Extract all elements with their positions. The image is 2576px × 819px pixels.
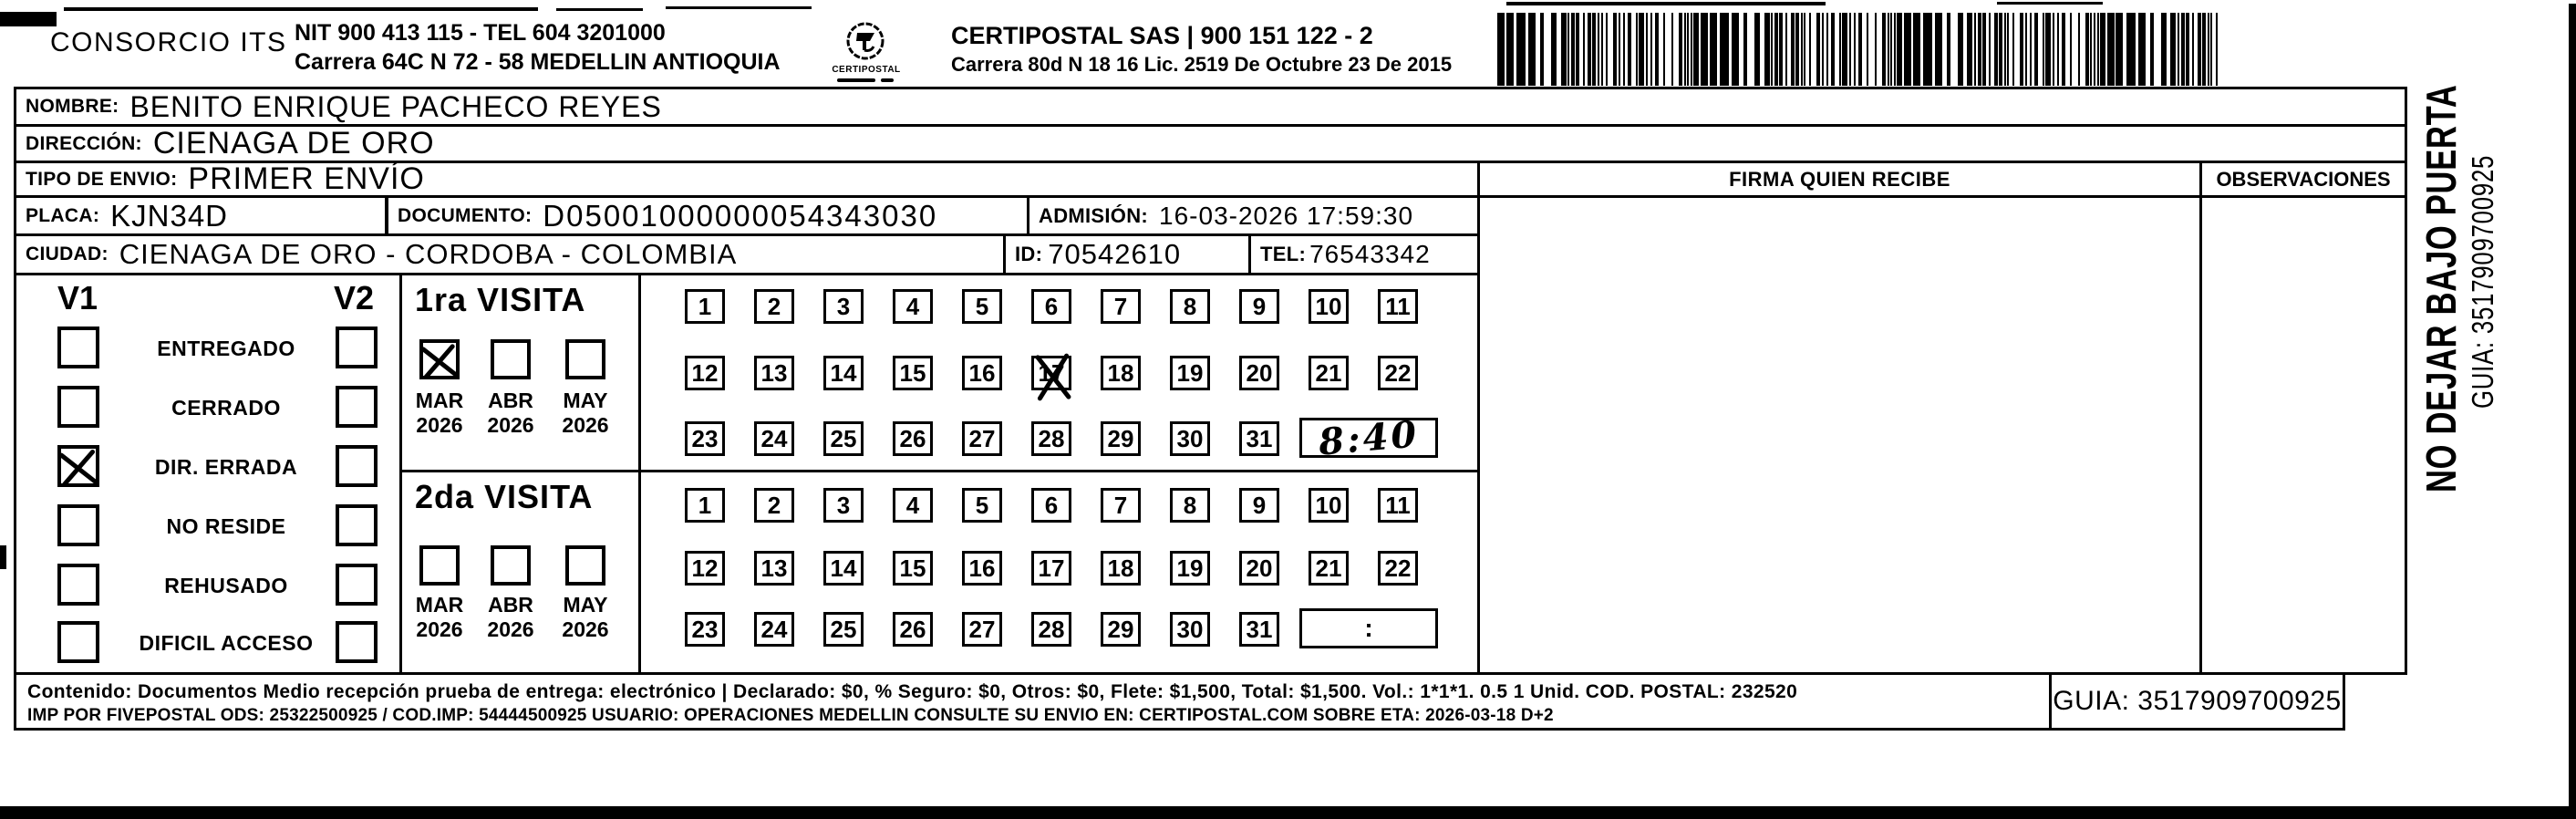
v1-day-1[interactable]: 1 bbox=[685, 289, 725, 324]
tel-label: TEL: bbox=[1260, 243, 1306, 266]
month-label: MAY2026 bbox=[547, 389, 624, 438]
tel-value: 76543342 bbox=[1309, 240, 1431, 269]
v1-month-may-checkbox[interactable] bbox=[565, 339, 605, 379]
v2-dir-errada-checkbox[interactable] bbox=[336, 445, 378, 487]
nombre-value: BENITO ENRIQUE PACHECO REYES bbox=[129, 90, 661, 124]
id-value: 70542610 bbox=[1048, 238, 1181, 271]
v1-day-13[interactable]: 13 bbox=[754, 356, 794, 390]
scan-artifact-top-dash-2 bbox=[666, 6, 812, 9]
v1-day-3[interactable]: 3 bbox=[823, 289, 864, 324]
v1-day-29[interactable]: 29 bbox=[1101, 421, 1141, 456]
v2-day-22[interactable]: 22 bbox=[1378, 551, 1418, 586]
v2-dificil-acceso-checkbox[interactable] bbox=[336, 621, 378, 663]
v1-day-30[interactable]: 30 bbox=[1170, 421, 1210, 456]
scan-artifact-left-mark bbox=[0, 545, 6, 569]
brand-name-line: CERTIPOSTAL SAS | 900 151 122 - 2 bbox=[951, 22, 1373, 50]
scan-artifact-top-line bbox=[64, 7, 538, 11]
v1-month-mar-checkbox[interactable] bbox=[419, 339, 460, 379]
v2-cerrado-checkbox[interactable] bbox=[336, 386, 378, 428]
scan-artifact-barcode-topline-1 bbox=[1506, 2, 1826, 5]
month-label: ABR2026 bbox=[472, 593, 549, 642]
field-tel: TEL: 76543342 bbox=[1248, 233, 1480, 275]
v1-day-11[interactable]: 11 bbox=[1378, 289, 1418, 324]
v2-day-25[interactable]: 25 bbox=[823, 612, 864, 647]
v1-dificil-acceso-checkbox[interactable] bbox=[57, 621, 99, 663]
v1-day-19[interactable]: 19 bbox=[1170, 356, 1210, 390]
v2-day-29[interactable]: 29 bbox=[1101, 612, 1141, 647]
ciudad-label: CIUDAD: bbox=[26, 244, 109, 265]
month-label: MAY2026 bbox=[547, 593, 624, 642]
v2-day-4[interactable]: 4 bbox=[893, 488, 933, 523]
v1-rehusado-checkbox[interactable] bbox=[57, 564, 99, 606]
v2-day-24[interactable]: 24 bbox=[754, 612, 794, 647]
v2-entregado-checkbox[interactable] bbox=[336, 327, 378, 368]
field-admision: ADMISIÓN: 16-03-2026 17:59:30 bbox=[1027, 195, 1480, 236]
placa-value: KJN34D bbox=[110, 199, 228, 233]
field-ciudad: CIUDAD: CIENAGA DE ORO - CORDOBA - COLOM… bbox=[14, 233, 1006, 275]
v2-day-26[interactable]: 26 bbox=[893, 612, 933, 647]
v2-day-23[interactable]: 23 bbox=[685, 612, 725, 647]
v1-day-25[interactable]: 25 bbox=[823, 421, 864, 456]
placa-label: PLACA: bbox=[26, 205, 99, 227]
v2-day-19[interactable]: 19 bbox=[1170, 551, 1210, 586]
v2-day-14[interactable]: 14 bbox=[823, 551, 864, 586]
tipo-envio-value: PRIMER ENVÍO bbox=[188, 161, 424, 197]
v2-day-6[interactable]: 6 bbox=[1031, 488, 1071, 523]
firma-header-cell: FIRMA QUIEN RECIBE bbox=[1477, 161, 2202, 198]
v2-day-2[interactable]: 2 bbox=[754, 488, 794, 523]
documento-value: D05001000000054343030 bbox=[543, 199, 937, 233]
v2-month-abr-checkbox[interactable] bbox=[491, 545, 531, 586]
delivery-form-scan: CONSORCIO ITS NIT 900 413 115 - TEL 604 … bbox=[0, 0, 2576, 819]
company-name: CONSORCIO ITS bbox=[50, 27, 287, 58]
footer-line-2: IMP POR FIVEPOSTAL ODS: 25322500925 / CO… bbox=[27, 704, 2049, 728]
v2-day-9[interactable]: 9 bbox=[1239, 488, 1279, 523]
barcode bbox=[1497, 13, 2232, 86]
certipostal-logo-icon bbox=[844, 20, 886, 62]
handwritten-x-mark bbox=[57, 445, 99, 487]
v1-day-23[interactable]: 23 bbox=[685, 421, 725, 456]
v2-day-12[interactable]: 12 bbox=[685, 551, 725, 586]
status-label: DIFICIL ACCESO bbox=[117, 631, 336, 656]
handwritten-time: 8:40 bbox=[1317, 412, 1421, 463]
v2-month-may-checkbox[interactable] bbox=[565, 545, 605, 586]
v1-day-9[interactable]: 9 bbox=[1239, 289, 1279, 324]
status-label: DIR. ERRADA bbox=[117, 455, 336, 480]
observaciones-area[interactable] bbox=[2199, 195, 2407, 675]
field-documento: DOCUMENTO: D05001000000054343030 bbox=[386, 195, 1029, 236]
side-guia-text: GUIA: 3517909700925 bbox=[2466, 155, 2500, 409]
v1-day-31[interactable]: 31 bbox=[1239, 421, 1279, 456]
v1-day-5[interactable]: 5 bbox=[962, 289, 1002, 324]
field-placa: PLACA: KJN34D bbox=[14, 195, 388, 236]
nombre-label: NOMBRE: bbox=[26, 96, 119, 118]
v1-day-22[interactable]: 22 bbox=[1378, 356, 1418, 390]
field-id: ID: 70542610 bbox=[1003, 233, 1251, 275]
v1-day-24[interactable]: 24 bbox=[754, 421, 794, 456]
guia-box: GUIA: 3517909700925 bbox=[2049, 672, 2345, 731]
v1-day-10[interactable]: 10 bbox=[1309, 289, 1349, 324]
v1-day-27[interactable]: 27 bbox=[962, 421, 1002, 456]
company-address-line: Carrera 64C N 72 - 58 MEDELLIN ANTIOQUIA bbox=[295, 49, 781, 76]
v2-day-31[interactable]: 31 bbox=[1239, 612, 1279, 647]
direccion-label: DIRECCIÓN: bbox=[26, 133, 142, 155]
month-label: MAR2026 bbox=[401, 389, 478, 438]
logo-wordmark: CERTIPOSTAL bbox=[821, 65, 912, 75]
v1-month-abr-checkbox[interactable] bbox=[491, 339, 531, 379]
scan-artifact-top-left-streak bbox=[0, 12, 57, 26]
v1-day-15[interactable]: 15 bbox=[893, 356, 933, 390]
side-warning-text: NO DEJAR BAJO PUERTA bbox=[2416, 84, 2466, 492]
visit-1-section: 1ra VISITA MAR2026ABR2026MAY2026 bbox=[399, 273, 641, 472]
v1-entregado-checkbox[interactable] bbox=[57, 327, 99, 368]
v2-day-13[interactable]: 13 bbox=[754, 551, 794, 586]
v2-day-27[interactable]: 27 bbox=[962, 612, 1002, 647]
visit-2-day-grid: 1234567891011121314151617181920212223242… bbox=[638, 470, 1480, 675]
v1-day-12[interactable]: 12 bbox=[685, 356, 725, 390]
v2-no-reside-checkbox[interactable] bbox=[336, 504, 378, 546]
visit-2-section: 2da VISITA MAR2026ABR2026MAY2026 bbox=[399, 470, 641, 675]
handwritten-x-mark bbox=[419, 339, 460, 379]
v1-day-6[interactable]: 6 bbox=[1031, 289, 1071, 324]
v2-day-11[interactable]: 11 bbox=[1378, 488, 1418, 523]
v2-rehusado-checkbox[interactable] bbox=[336, 564, 378, 606]
v1-day-8[interactable]: 8 bbox=[1170, 289, 1210, 324]
admision-label: ADMISIÓN: bbox=[1039, 204, 1148, 228]
v2-day-8[interactable]: 8 bbox=[1170, 488, 1210, 523]
v1-day-18[interactable]: 18 bbox=[1101, 356, 1141, 390]
month-label: ABR2026 bbox=[472, 389, 549, 438]
v1-cerrado-checkbox[interactable] bbox=[57, 386, 99, 428]
ciudad-value: CIENAGA DE ORO - CORDOBA - COLOMBIA bbox=[119, 238, 738, 271]
guia-value: GUIA: 3517909700925 bbox=[2053, 686, 2341, 717]
v1-day-2[interactable]: 2 bbox=[754, 289, 794, 324]
status-label: CERRADO bbox=[117, 396, 336, 420]
company-nit-line: NIT 900 413 115 - TEL 604 3201000 bbox=[295, 20, 666, 47]
v1-dir-errada-checkbox[interactable] bbox=[57, 445, 99, 487]
visit-1-title: 1ra VISITA bbox=[415, 281, 585, 319]
v1-day-4[interactable]: 4 bbox=[893, 289, 933, 324]
v1-day-17[interactable]: 17 bbox=[1031, 356, 1071, 390]
v1-no-reside-checkbox[interactable] bbox=[57, 504, 99, 546]
observaciones-header-cell: OBSERVACIONES bbox=[2199, 161, 2407, 198]
status-label: ENTREGADO bbox=[117, 337, 336, 361]
field-tipo-envio: TIPO DE ENVIO: PRIMER ENVÍO bbox=[14, 161, 1480, 198]
brand-address-line: Carrera 80d N 18 16 Lic. 2519 De Octubre… bbox=[951, 53, 1452, 77]
footer-info-cell: Contenido: Documentos Medio recepción pr… bbox=[14, 672, 2052, 731]
status-section: V1 V2 ENTREGADOCERRADODIR. ERRADANO RESI… bbox=[14, 273, 402, 675]
field-direccion: DIRECCIÓN: CIENAGA DE ORO bbox=[14, 124, 2407, 163]
day-cross-mark bbox=[1026, 348, 1081, 401]
documento-label: DOCUMENTO: bbox=[398, 205, 532, 227]
v2-day-5[interactable]: 5 bbox=[962, 488, 1002, 523]
v2-day-28[interactable]: 28 bbox=[1031, 612, 1071, 647]
v2-day-18[interactable]: 18 bbox=[1101, 551, 1141, 586]
tipo-envio-label: TIPO DE ENVIO: bbox=[26, 169, 177, 191]
month-label: MAR2026 bbox=[401, 593, 478, 642]
admision-value: 16-03-2026 17:59:30 bbox=[1159, 202, 1413, 231]
logo-tagline-smudge bbox=[837, 78, 875, 82]
v2-day-16[interactable]: 16 bbox=[962, 551, 1002, 586]
direccion-value: CIENAGA DE ORO bbox=[153, 126, 435, 161]
v2-day-17[interactable]: 17 bbox=[1031, 551, 1071, 586]
v1-time-box[interactable]: 8:40 bbox=[1299, 418, 1438, 458]
v1-day-21[interactable]: 21 bbox=[1309, 356, 1349, 390]
status-label: REHUSADO bbox=[117, 574, 336, 598]
visit-2-title: 2da VISITA bbox=[415, 478, 593, 516]
scan-artifact-right-bar bbox=[2569, 4, 2576, 819]
v2-day-15[interactable]: 15 bbox=[893, 551, 933, 586]
footer-line-1: Contenido: Documentos Medio recepción pr… bbox=[27, 679, 2049, 704]
v1-day-28[interactable]: 28 bbox=[1031, 421, 1071, 456]
scan-artifact-barcode-topline-2 bbox=[1997, 2, 2103, 5]
v2-month-mar-checkbox[interactable] bbox=[419, 545, 460, 586]
v2-day-1[interactable]: 1 bbox=[685, 488, 725, 523]
v2-day-20[interactable]: 20 bbox=[1239, 551, 1279, 586]
v2-day-7[interactable]: 7 bbox=[1101, 488, 1141, 523]
scan-artifact-top-dash-1 bbox=[556, 8, 643, 11]
status-label: NO RESIDE bbox=[117, 514, 336, 539]
v1-day-14[interactable]: 14 bbox=[823, 356, 864, 390]
v1-day-20[interactable]: 20 bbox=[1239, 356, 1279, 390]
field-nombre: NOMBRE: BENITO ENRIQUE PACHECO REYES bbox=[14, 87, 2407, 127]
logo-tagline-smudge-2 bbox=[881, 78, 894, 82]
v2-day-21[interactable]: 21 bbox=[1309, 551, 1349, 586]
scan-artifact-bottom-bar bbox=[0, 806, 2576, 819]
id-label: ID: bbox=[1015, 243, 1042, 266]
v1-day-16[interactable]: 16 bbox=[962, 356, 1002, 390]
v2-day-10[interactable]: 10 bbox=[1309, 488, 1349, 523]
visit-1-day-grid: 1234567891011121314151617181920212223242… bbox=[638, 273, 1480, 472]
v1-day-26[interactable]: 26 bbox=[893, 421, 933, 456]
v2-day-30[interactable]: 30 bbox=[1170, 612, 1210, 647]
firma-signature-area[interactable] bbox=[1477, 195, 2202, 675]
v2-day-3[interactable]: 3 bbox=[823, 488, 864, 523]
v1-header: V1 bbox=[57, 279, 98, 317]
v2-header: V2 bbox=[334, 279, 374, 317]
time-colon: : bbox=[1364, 614, 1372, 643]
v2-time-box[interactable]: : bbox=[1299, 608, 1438, 648]
v1-day-7[interactable]: 7 bbox=[1101, 289, 1141, 324]
